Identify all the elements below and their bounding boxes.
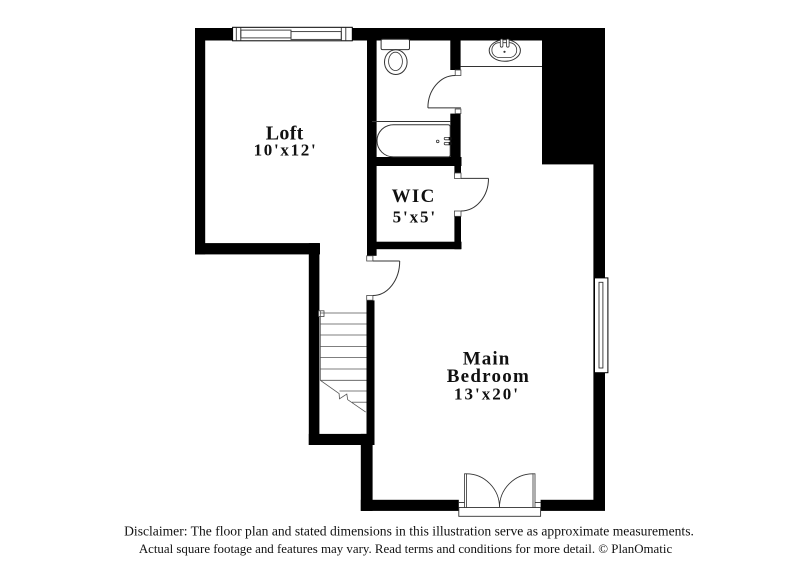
svg-text:10'x12': 10'x12'	[254, 141, 318, 160]
svg-text:WIC: WIC	[392, 186, 436, 207]
svg-text:Disclaimer: The floor plan and: Disclaimer: The floor plan and stated di…	[124, 524, 694, 539]
svg-text:Actual square footage and feat: Actual square footage and features may v…	[139, 542, 673, 556]
svg-text:13'x20': 13'x20'	[454, 385, 520, 404]
svg-text:5'x5': 5'x5'	[393, 207, 437, 226]
